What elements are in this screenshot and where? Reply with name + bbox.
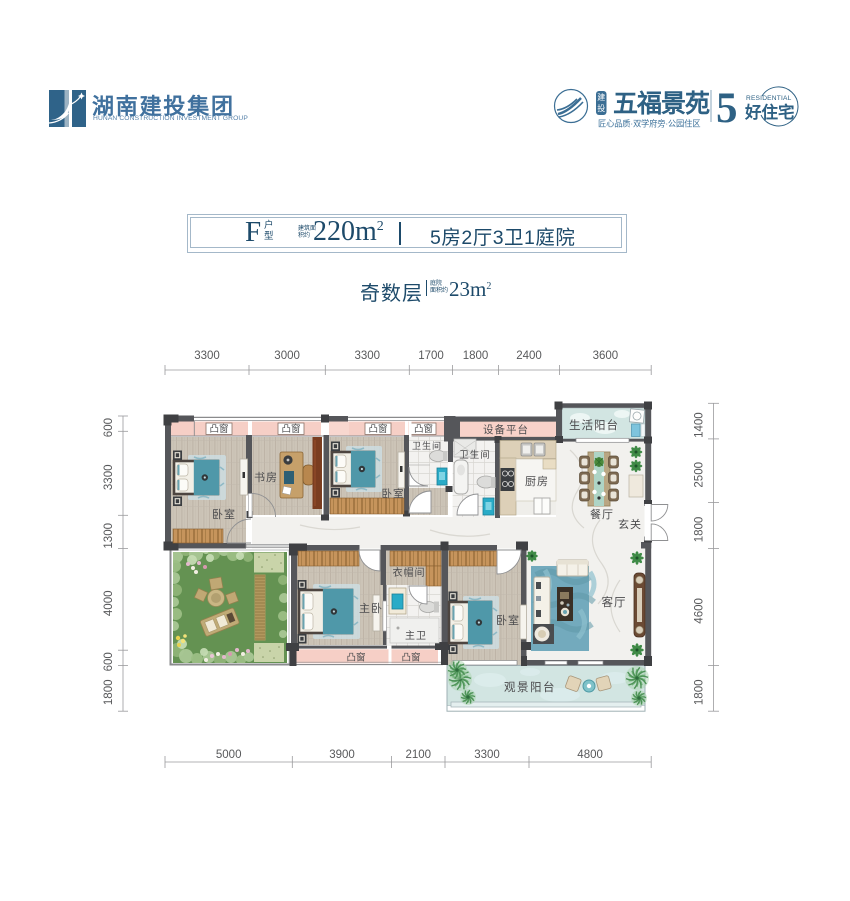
svg-text:3900: 3900 <box>329 749 355 761</box>
svg-text:玄关: 玄关 <box>618 517 642 531</box>
svg-text:卧室: 卧室 <box>382 487 405 500</box>
svg-text:建: 建 <box>597 92 605 102</box>
svg-text:观景阳台: 观景阳台 <box>504 680 556 694</box>
svg-text:4800: 4800 <box>577 749 603 761</box>
svg-text:3300: 3300 <box>355 350 381 362</box>
svg-text:卧室: 卧室 <box>212 507 236 521</box>
svg-text:卫生间: 卫生间 <box>412 440 442 451</box>
svg-text:主卫: 主卫 <box>405 630 427 642</box>
svg-text:衣帽间: 衣帽间 <box>393 566 426 579</box>
svg-text:1800: 1800 <box>463 350 489 362</box>
svg-text:餐厅: 餐厅 <box>590 507 614 521</box>
svg-text:凸窗: 凸窗 <box>368 423 387 435</box>
svg-text:3000: 3000 <box>274 350 300 362</box>
svg-text:1300: 1300 <box>103 523 115 549</box>
svg-text:卧室: 卧室 <box>496 613 520 627</box>
svg-text:3300: 3300 <box>194 350 220 362</box>
svg-text:2500: 2500 <box>694 462 706 488</box>
svg-text:好住宅: 好住宅 <box>744 102 795 122</box>
svg-text:1800: 1800 <box>103 680 115 706</box>
svg-text:2100: 2100 <box>406 749 432 761</box>
svg-text:卫生间: 卫生间 <box>459 449 491 461</box>
svg-text:4600: 4600 <box>694 598 706 624</box>
svg-text:1800: 1800 <box>694 680 706 706</box>
svg-text:客厅: 客厅 <box>602 595 627 609</box>
svg-text:1800: 1800 <box>694 517 706 543</box>
svg-text:凸窗: 凸窗 <box>414 423 433 435</box>
svg-text:凸窗: 凸窗 <box>346 652 365 664</box>
svg-text:3600: 3600 <box>593 350 619 362</box>
svg-text:凸窗: 凸窗 <box>281 423 300 435</box>
svg-text:4000: 4000 <box>103 591 115 617</box>
svg-text:书房: 书房 <box>254 471 278 484</box>
svg-text:3300: 3300 <box>103 465 115 491</box>
svg-text:设备平台: 设备平台 <box>483 423 529 436</box>
svg-text:3300: 3300 <box>474 749 500 761</box>
svg-text:1400: 1400 <box>694 412 706 438</box>
svg-text:生活阳台: 生活阳台 <box>569 418 619 432</box>
svg-text:5: 5 <box>716 85 738 130</box>
svg-text:匠心品质·双学府旁·公园住区: 匠心品质·双学府旁·公园住区 <box>598 119 700 129</box>
svg-text:主卧: 主卧 <box>359 602 383 615</box>
svg-text:1700: 1700 <box>418 350 444 362</box>
svg-text:2400: 2400 <box>516 350 542 362</box>
svg-text:600: 600 <box>103 652 115 671</box>
svg-text:凸窗: 凸窗 <box>209 423 228 435</box>
svg-text:5000: 5000 <box>216 749 242 761</box>
svg-text:厨房: 厨房 <box>525 475 549 488</box>
svg-text:凸窗: 凸窗 <box>401 652 420 664</box>
svg-text:投: 投 <box>597 103 605 113</box>
svg-text:600: 600 <box>103 418 115 437</box>
svg-text:五福景苑: 五福景苑 <box>613 90 710 118</box>
svg-text:RESIDENTIAL: RESIDENTIAL <box>746 95 792 102</box>
